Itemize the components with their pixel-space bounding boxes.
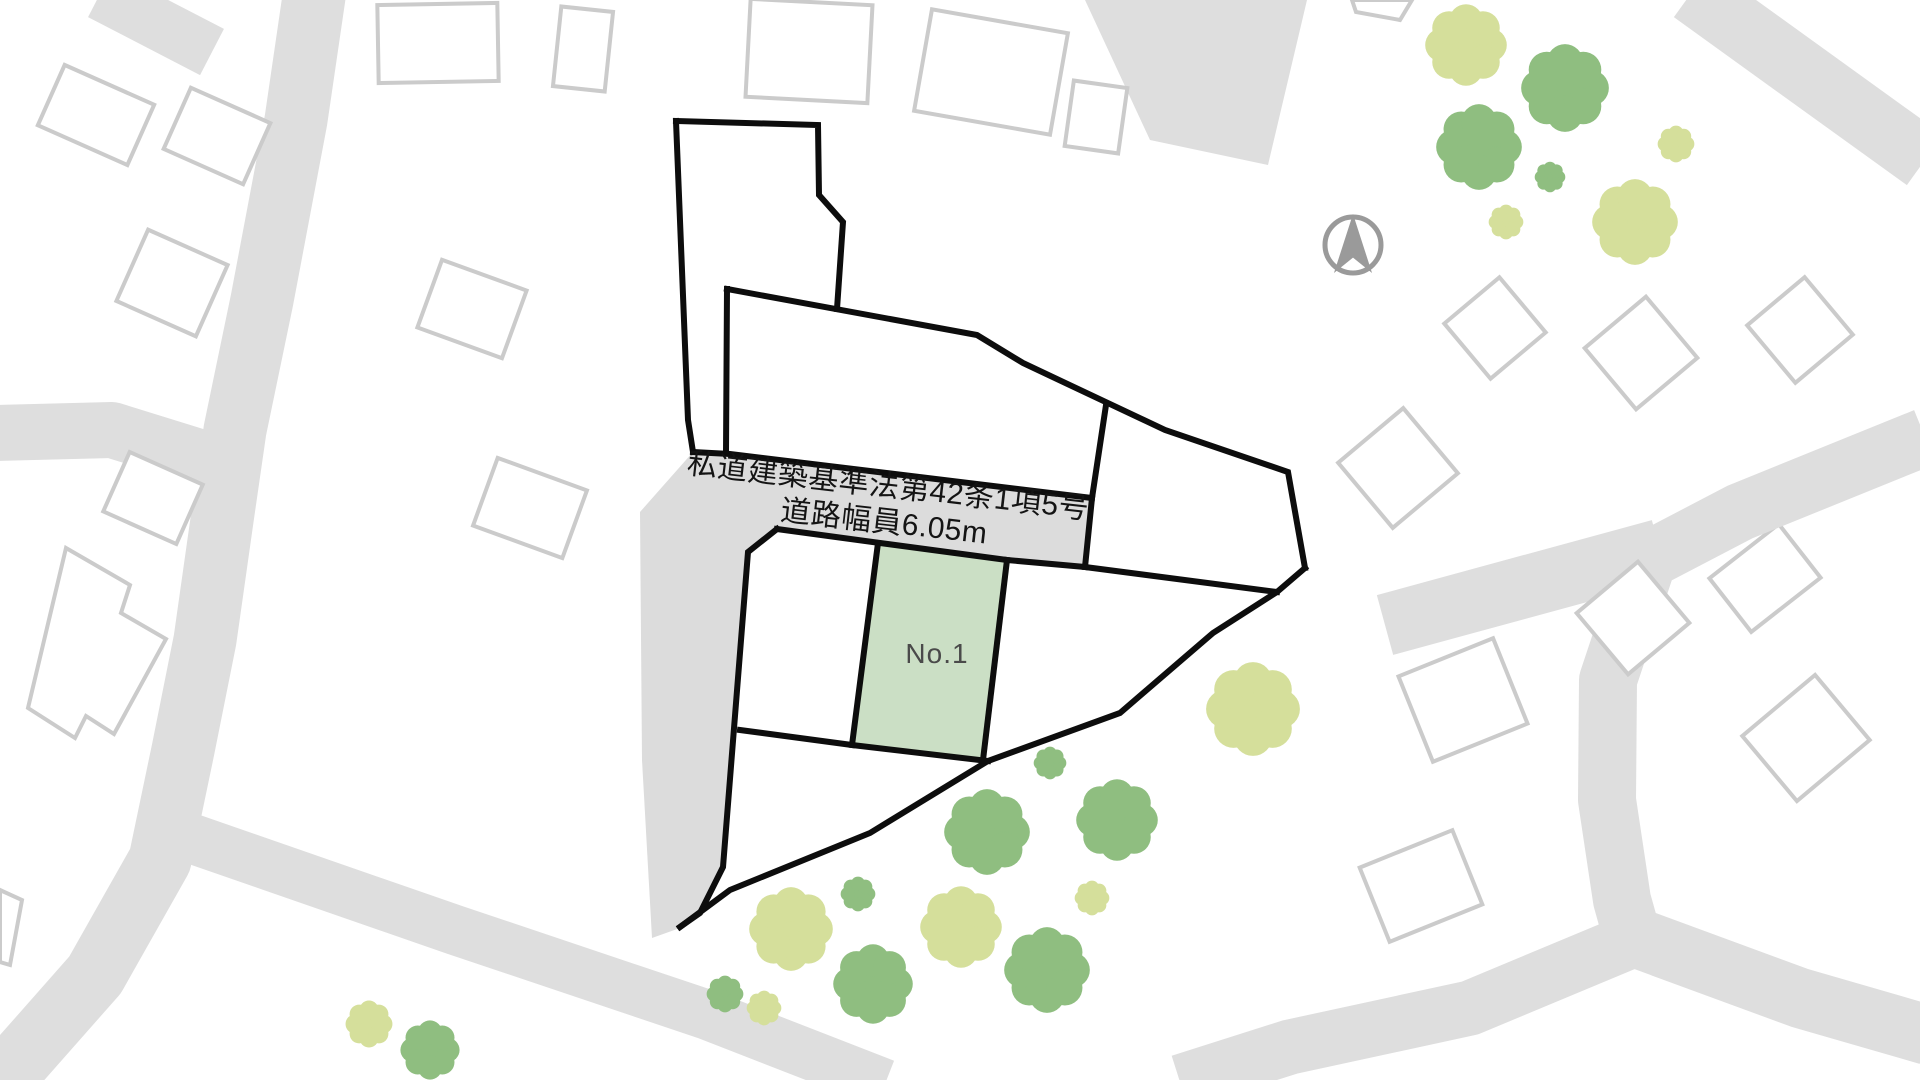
building-outline: [1065, 81, 1128, 154]
property-boundary-line: [726, 289, 727, 453]
tree-icon: [747, 991, 782, 1026]
tree-icon: [749, 887, 833, 971]
tree-icon: [1436, 104, 1522, 190]
site-plan-canvas: [0, 0, 1920, 1080]
tree-icon: [400, 1020, 459, 1079]
tree-icon: [1206, 662, 1300, 756]
site-plan: 私道建築基準法第42条1項5号 道路幅員6.05m No.1: [0, 0, 1920, 1080]
tree-icon: [841, 877, 876, 912]
building-outline: [377, 3, 498, 83]
tree-icon: [346, 1001, 393, 1048]
tree-icon: [1535, 162, 1566, 193]
tree-icon: [1489, 205, 1524, 240]
tree-icon: [1034, 747, 1067, 780]
tree-icon: [707, 976, 744, 1013]
tree-icon: [944, 789, 1030, 875]
tree-icon: [1004, 927, 1090, 1013]
building-outline: [553, 7, 613, 92]
tree-icon: [920, 886, 1002, 968]
building-outline: [914, 9, 1068, 134]
tree-icon: [1075, 881, 1110, 916]
tree-icon: [1076, 779, 1158, 861]
tree-icon: [1521, 44, 1609, 132]
tree-icon: [833, 944, 913, 1024]
tree-icon: [1658, 126, 1695, 163]
building-outline: [746, 0, 873, 103]
tree-icon: [1592, 179, 1678, 265]
tree-icon: [1425, 4, 1507, 86]
